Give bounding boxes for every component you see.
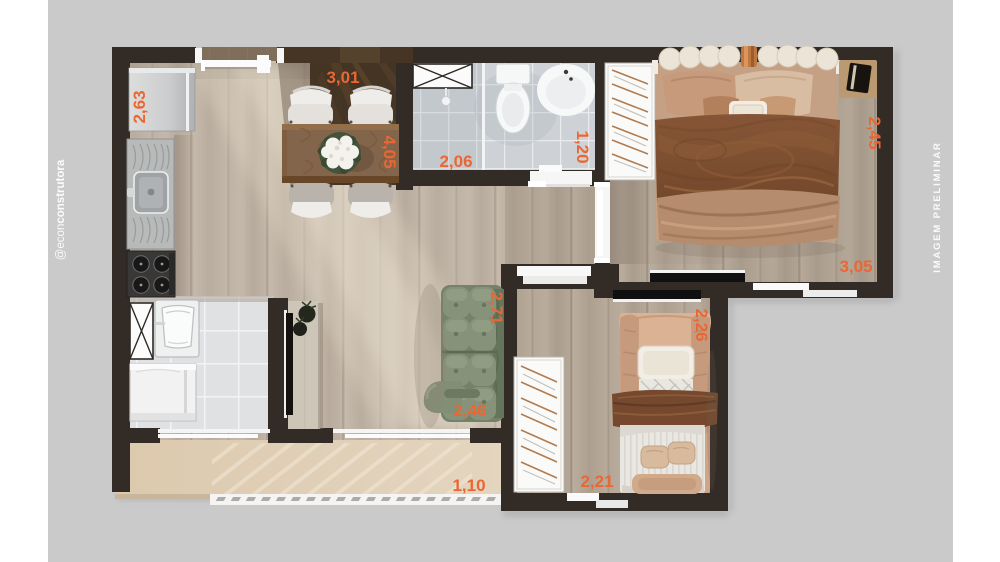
svg-text:4,05: 4,05 (380, 135, 399, 168)
svg-text:1,20: 1,20 (573, 130, 592, 163)
svg-text:3,01: 3,01 (326, 68, 359, 87)
svg-text:IMAGEM PRELIMINAR: IMAGEM PRELIMINAR (932, 141, 943, 272)
svg-text:2,46: 2,46 (453, 401, 486, 420)
svg-text:1,10: 1,10 (452, 476, 485, 495)
svg-text:2,63: 2,63 (130, 90, 149, 123)
svg-text:2,71: 2,71 (487, 291, 506, 324)
svg-text:@econconstrutora: @econconstrutora (55, 159, 67, 260)
svg-text:2,26: 2,26 (692, 308, 711, 341)
svg-text:2,06: 2,06 (439, 152, 472, 171)
svg-text:3,05: 3,05 (839, 257, 872, 276)
svg-text:2,45: 2,45 (865, 116, 884, 149)
svg-text:2,21: 2,21 (580, 472, 613, 491)
